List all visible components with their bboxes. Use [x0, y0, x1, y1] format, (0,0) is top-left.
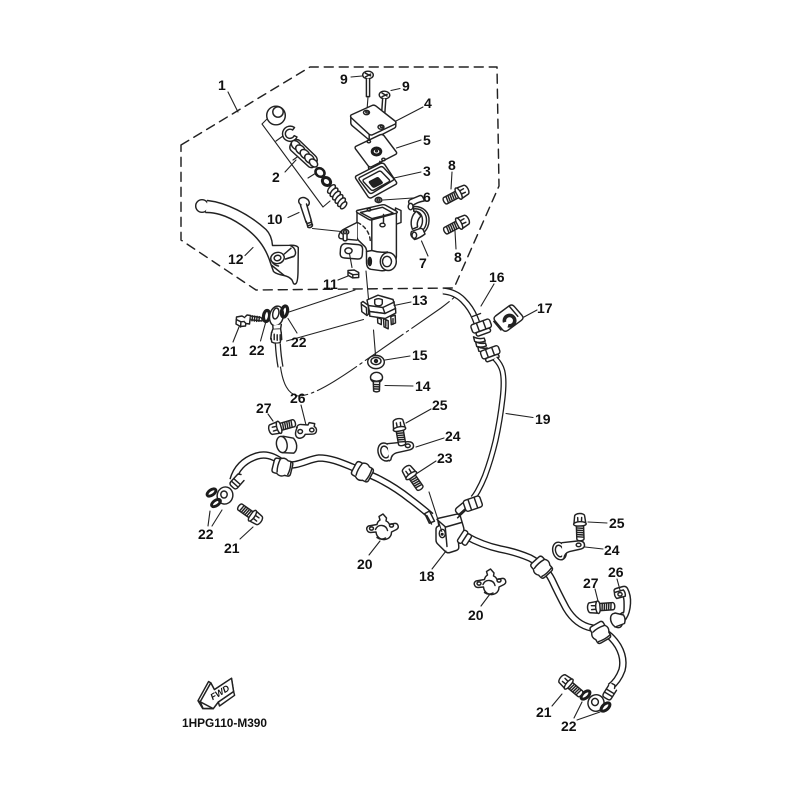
svg-text:24: 24: [445, 428, 461, 444]
svg-text:21: 21: [536, 704, 552, 720]
svg-text:8: 8: [448, 157, 456, 173]
svg-text:26: 26: [290, 390, 306, 406]
svg-text:27: 27: [583, 575, 599, 591]
svg-text:21: 21: [224, 540, 240, 556]
svg-text:16: 16: [489, 269, 505, 285]
svg-text:25: 25: [432, 397, 448, 413]
svg-text:26: 26: [608, 564, 624, 580]
svg-text:6: 6: [423, 189, 431, 205]
svg-text:22: 22: [561, 718, 577, 734]
svg-text:14: 14: [415, 378, 431, 394]
svg-text:22: 22: [198, 526, 214, 542]
svg-text:1HPG110-M390: 1HPG110-M390: [182, 716, 267, 730]
svg-text:9: 9: [402, 78, 410, 94]
svg-text:20: 20: [468, 607, 484, 623]
svg-text:4: 4: [424, 95, 432, 111]
svg-text:12: 12: [228, 251, 244, 267]
svg-text:3: 3: [423, 163, 431, 179]
svg-text:19: 19: [535, 411, 551, 427]
svg-text:11: 11: [323, 276, 338, 292]
svg-text:17: 17: [537, 300, 553, 316]
svg-text:22: 22: [291, 334, 307, 350]
svg-text:23: 23: [437, 450, 453, 466]
svg-text:7: 7: [419, 255, 427, 271]
svg-text:18: 18: [419, 568, 435, 584]
svg-text:24: 24: [604, 542, 620, 558]
svg-text:9: 9: [340, 71, 348, 87]
svg-text:15: 15: [412, 347, 428, 363]
svg-text:21: 21: [222, 343, 238, 359]
svg-text:25: 25: [609, 515, 625, 531]
svg-text:22: 22: [249, 342, 265, 358]
svg-text:20: 20: [357, 556, 373, 572]
svg-text:8: 8: [454, 249, 462, 265]
svg-text:10: 10: [267, 211, 283, 227]
svg-text:2: 2: [272, 169, 280, 185]
svg-text:27: 27: [256, 400, 272, 416]
svg-text:1: 1: [218, 77, 226, 93]
svg-text:13: 13: [412, 292, 428, 308]
svg-text:5: 5: [423, 132, 431, 148]
